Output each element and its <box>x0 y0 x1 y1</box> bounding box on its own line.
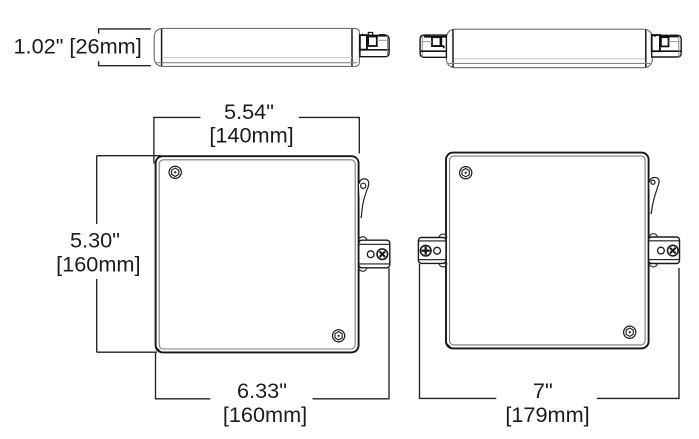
svg-text:7": 7" <box>533 378 553 403</box>
svg-text:5.30": 5.30" <box>70 228 120 253</box>
svg-text:[160mm]: [160mm] <box>56 252 140 277</box>
svg-text:1.02" [26mm]: 1.02" [26mm] <box>14 34 142 59</box>
svg-text:[160mm]: [160mm] <box>223 402 307 427</box>
svg-text:6.33": 6.33" <box>237 378 287 403</box>
svg-text:[179mm]: [179mm] <box>505 402 589 427</box>
svg-text:5.54": 5.54" <box>224 99 274 124</box>
svg-text:[140mm]: [140mm] <box>209 123 293 148</box>
